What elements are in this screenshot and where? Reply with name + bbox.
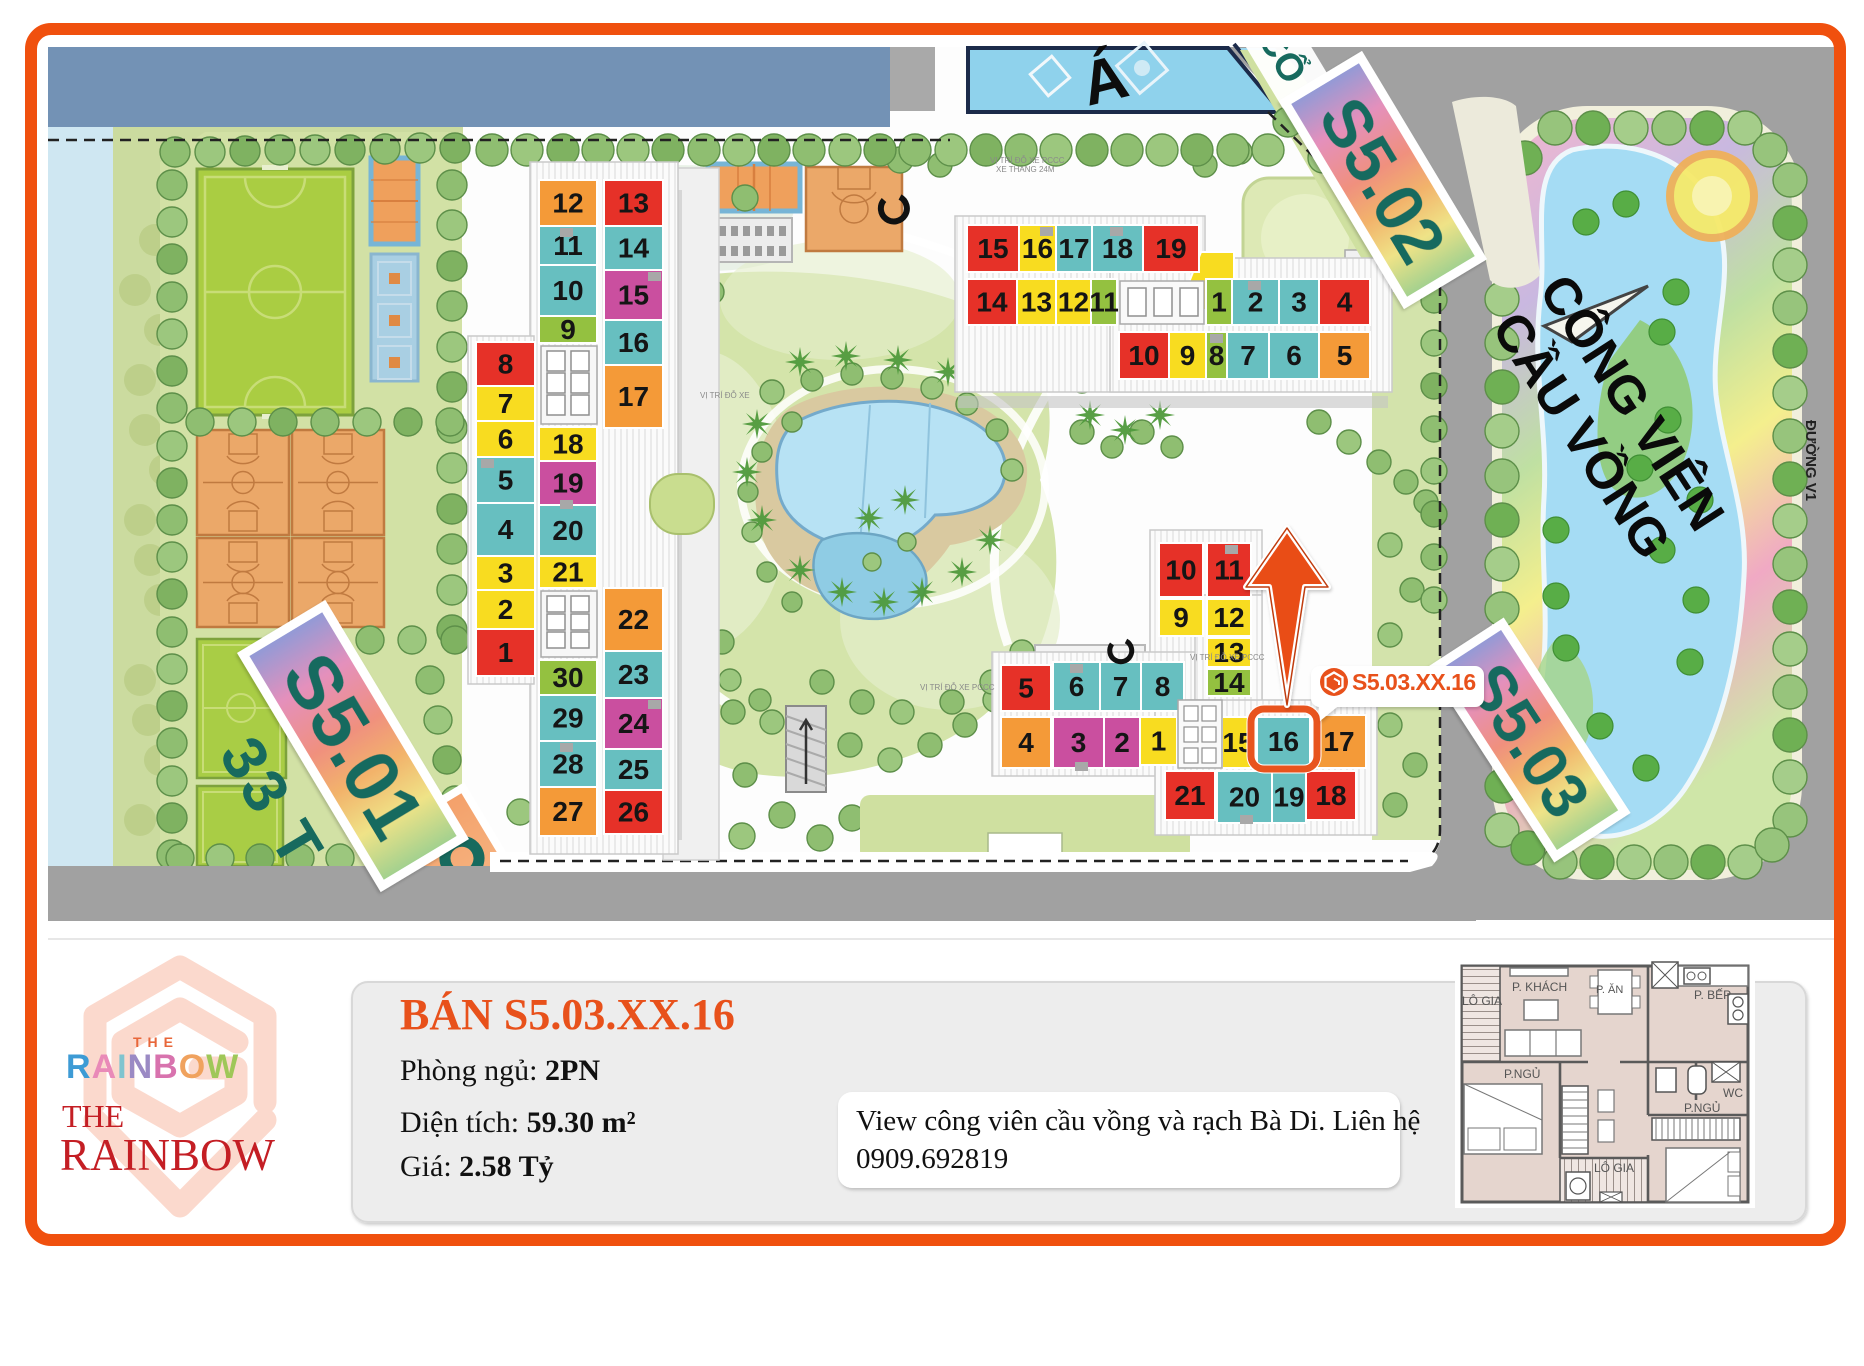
svg-text:17: 17 xyxy=(1058,233,1089,264)
svg-text:29: 29 xyxy=(552,703,583,734)
svg-text:28: 28 xyxy=(552,749,583,780)
svg-text:19: 19 xyxy=(552,468,583,499)
svg-text:1: 1 xyxy=(1211,287,1227,318)
svg-text:Giá: 2.58 Tỷ: Giá: 2.58 Tỷ xyxy=(400,1150,554,1183)
svg-text:1: 1 xyxy=(1151,726,1167,757)
svg-text:7: 7 xyxy=(498,388,514,419)
svg-text:20: 20 xyxy=(552,515,583,546)
svg-text:13: 13 xyxy=(1021,287,1052,318)
svg-text:P. KHÁCH: P. KHÁCH xyxy=(1512,979,1567,994)
svg-text:14: 14 xyxy=(976,287,1008,318)
svg-text:P. BẾP: P. BẾP xyxy=(1694,987,1731,1002)
svg-text:12: 12 xyxy=(1058,287,1089,318)
svg-text:S5.03.XX.16: S5.03.XX.16 xyxy=(1352,669,1476,695)
svg-text:4: 4 xyxy=(1337,287,1353,318)
svg-text:16: 16 xyxy=(1022,233,1053,264)
svg-text:24: 24 xyxy=(618,708,650,739)
svg-text:27: 27 xyxy=(552,796,583,827)
svg-text:10: 10 xyxy=(1165,555,1196,586)
svg-text:7: 7 xyxy=(1240,340,1256,371)
svg-text:5: 5 xyxy=(1018,673,1034,704)
svg-text:VỊ TRÍ ĐỖ XE PCCC: VỊ TRÍ ĐỖ XE PCCC xyxy=(990,156,1065,165)
svg-text:19: 19 xyxy=(1273,782,1304,813)
svg-text:VỊ TRÍ ĐỖ XE PCCC: VỊ TRÍ ĐỖ XE PCCC xyxy=(1190,653,1265,662)
svg-text:12: 12 xyxy=(552,188,583,219)
svg-text:VỊ TRÍ ĐỖ XE PCCC: VỊ TRÍ ĐỖ XE PCCC xyxy=(920,683,995,692)
svg-text:15: 15 xyxy=(977,233,1008,264)
svg-text:23: 23 xyxy=(618,659,649,690)
svg-text:9: 9 xyxy=(1180,340,1196,371)
svg-text:14: 14 xyxy=(618,233,650,264)
svg-text:13: 13 xyxy=(618,188,649,219)
svg-text:2: 2 xyxy=(498,594,514,625)
svg-text:22: 22 xyxy=(618,604,649,635)
svg-text:P. ĂN: P. ĂN xyxy=(1596,983,1623,996)
svg-text:20: 20 xyxy=(1229,782,1260,813)
svg-text:9: 9 xyxy=(560,314,576,345)
svg-text:15: 15 xyxy=(618,280,649,311)
svg-text:4: 4 xyxy=(498,514,514,545)
svg-text:12: 12 xyxy=(1213,602,1244,633)
svg-text:Diện tích: 59.30 m²: Diện tích: 59.30 m² xyxy=(400,1106,636,1139)
svg-text:10: 10 xyxy=(552,275,583,306)
svg-text:18: 18 xyxy=(1102,233,1133,264)
svg-text:18: 18 xyxy=(1315,780,1346,811)
svg-text:17: 17 xyxy=(618,381,649,412)
svg-text:Phòng ngủ: 2PN: Phòng ngủ: 2PN xyxy=(400,1054,600,1087)
svg-text:5: 5 xyxy=(1337,340,1353,371)
svg-text:30: 30 xyxy=(552,662,583,693)
svg-text:View công viên cầu vồng và rạc: View công viên cầu vồng và rạch Bà Di. L… xyxy=(856,1105,1420,1137)
svg-text:11: 11 xyxy=(1214,555,1244,586)
svg-text:3: 3 xyxy=(1291,287,1307,318)
svg-text:3: 3 xyxy=(1071,727,1087,758)
svg-text:25: 25 xyxy=(618,754,649,785)
svg-text:0909.692819: 0909.692819 xyxy=(856,1143,1008,1175)
svg-text:5: 5 xyxy=(498,465,514,496)
svg-text:9: 9 xyxy=(1173,602,1189,633)
svg-text:16: 16 xyxy=(1268,726,1299,757)
svg-text:10: 10 xyxy=(1128,340,1159,371)
svg-text:RAINBOW: RAINBOW xyxy=(66,1048,239,1086)
svg-text:21: 21 xyxy=(552,557,583,588)
svg-text:VỊ TRÍ ĐỖ XE: VỊ TRÍ ĐỖ XE xyxy=(700,391,750,400)
svg-text:6: 6 xyxy=(498,424,514,455)
svg-text:6: 6 xyxy=(1069,671,1085,702)
svg-text:18: 18 xyxy=(552,429,583,460)
svg-text:LÔ GIA: LÔ GIA xyxy=(1462,993,1502,1008)
svg-text:ĐƯỜNG V1: ĐƯỜNG V1 xyxy=(1802,420,1820,501)
svg-text:P.NGỦ: P.NGỦ xyxy=(1684,1100,1720,1115)
svg-text:6: 6 xyxy=(1286,340,1302,371)
svg-text:RAINBOW: RAINBOW xyxy=(60,1130,276,1180)
svg-text:11: 11 xyxy=(1089,287,1119,318)
svg-text:1: 1 xyxy=(498,637,514,668)
svg-text:8: 8 xyxy=(498,349,514,380)
svg-text:7: 7 xyxy=(1113,671,1129,702)
svg-text:8: 8 xyxy=(1209,340,1225,371)
svg-text:8: 8 xyxy=(1155,671,1171,702)
svg-text:WC: WC xyxy=(1723,1086,1743,1100)
svg-text:21: 21 xyxy=(1174,780,1205,811)
svg-text:LÔ GIA: LÔ GIA xyxy=(1594,1160,1634,1175)
svg-text:14: 14 xyxy=(1213,667,1245,698)
svg-text:THE: THE xyxy=(62,1098,124,1134)
svg-text:2: 2 xyxy=(1248,287,1264,318)
svg-text:17: 17 xyxy=(1323,726,1354,757)
svg-text:2: 2 xyxy=(1114,727,1130,758)
svg-text:26: 26 xyxy=(618,797,649,828)
svg-text:BÁN S5.03.XX.16: BÁN S5.03.XX.16 xyxy=(400,990,735,1039)
svg-text:16: 16 xyxy=(618,327,649,358)
svg-text:3: 3 xyxy=(498,558,514,589)
svg-text:19: 19 xyxy=(1155,233,1186,264)
svg-text:P.NGỦ: P.NGỦ xyxy=(1504,1066,1540,1081)
svg-text:4: 4 xyxy=(1018,727,1034,758)
svg-text:XE THANG 24M: XE THANG 24M xyxy=(996,165,1055,174)
